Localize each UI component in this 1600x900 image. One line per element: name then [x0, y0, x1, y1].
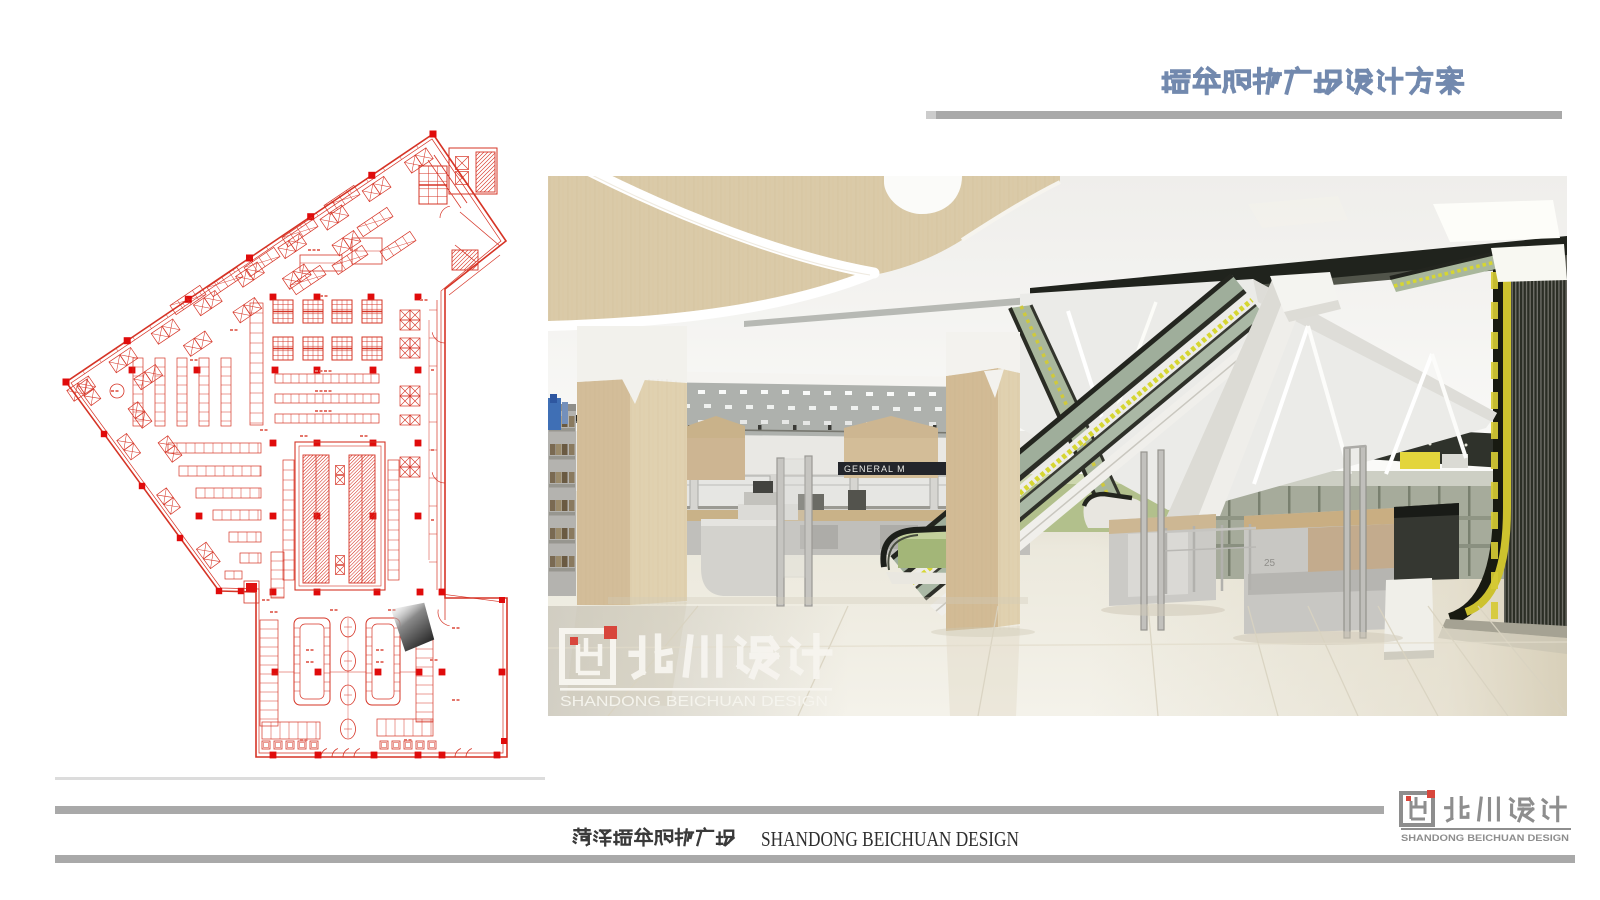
svg-text:GENERAL M: GENERAL M: [844, 464, 906, 474]
svg-text:SHANDONG BEICHUAN DESIGN: SHANDONG BEICHUAN DESIGN: [1401, 833, 1569, 844]
svg-text:SHANDONG BEICHUAN DESIGN: SHANDONG BEICHUAN DESIGN: [761, 827, 1019, 851]
svg-text:SHANDONG BEICHUAN DESIGN: SHANDONG BEICHUAN DESIGN: [560, 693, 828, 710]
svg-text:25: 25: [1264, 558, 1276, 569]
